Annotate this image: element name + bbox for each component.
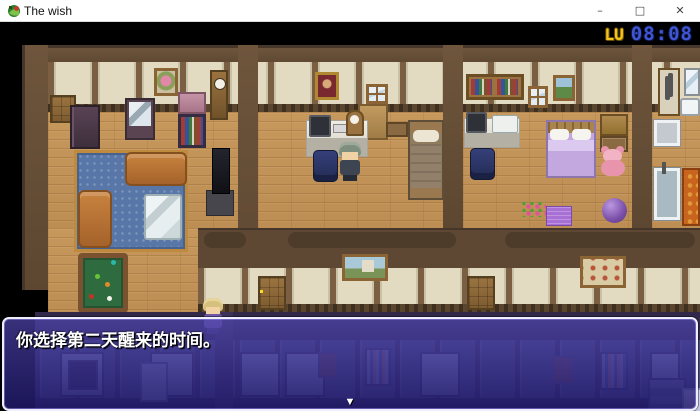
bathroom-sink <box>680 98 700 116</box>
shower-basin <box>654 120 680 146</box>
window-middle <box>366 84 388 104</box>
window-title: The wish <box>24 4 72 18</box>
bed-footboard <box>410 188 442 198</box>
wall-bookshelf <box>466 74 524 100</box>
door-middle-left <box>258 276 286 310</box>
clock-period-label: LU <box>605 25 624 44</box>
glass-table <box>144 194 182 240</box>
bed-single <box>408 120 444 200</box>
npc-face <box>342 152 358 160</box>
wardrobe-dark <box>70 105 100 149</box>
pool-ball-green <box>95 274 100 279</box>
band-inset <box>204 232 246 248</box>
pool-ball-teal <box>111 260 116 265</box>
npc-legs <box>343 175 357 181</box>
books-row <box>471 79 492 95</box>
minimize-icon[interactable]: – <box>580 0 620 21</box>
shower-head <box>665 76 670 100</box>
bed-pillow <box>413 130 439 142</box>
close-icon[interactable]: ✕ <box>660 0 700 21</box>
door-middle-right <box>467 276 495 310</box>
pool-table <box>78 253 128 313</box>
bench-small <box>386 122 408 137</box>
bed-pillow <box>572 129 591 140</box>
app-window: The wish – □ ✕ LU 08:08 <box>0 0 700 411</box>
bed-blanket-fold <box>548 140 594 151</box>
window-controls: – □ ✕ <box>580 0 700 21</box>
bed-pillow <box>550 129 569 140</box>
player-face <box>206 307 220 314</box>
npc-body <box>340 160 360 175</box>
display-cabinet-glass <box>129 102 151 126</box>
bed-double-purple <box>546 120 596 178</box>
books-row <box>497 79 518 95</box>
dialogue-window[interactable]: 你选择第二天醒来的时间。 ▼ <box>2 317 698 411</box>
teddy-body <box>601 160 625 176</box>
bed-blanket <box>411 144 441 188</box>
printer <box>492 115 518 133</box>
flowers-small <box>522 202 546 217</box>
mirror <box>684 68 700 96</box>
couch-vertical <box>78 190 112 248</box>
dialogue-continue-icon: ▼ <box>345 396 356 408</box>
hud-clock: LU 08:08 <box>605 23 693 45</box>
painting-castle-keep <box>362 260 374 272</box>
bathtub <box>654 168 680 220</box>
grandfather-clock-face <box>214 78 226 90</box>
band-inset <box>288 232 456 248</box>
band-inset <box>505 232 695 248</box>
tv-screen <box>212 148 230 194</box>
titlebar[interactable]: The wish – □ ✕ <box>0 0 700 22</box>
pool-ball-red <box>89 294 94 299</box>
window-right <box>528 86 548 108</box>
clock-time: 08:08 <box>631 23 693 45</box>
wall-divider-bathroom <box>632 45 652 228</box>
picture-flowers <box>154 68 178 96</box>
door-sparkle <box>260 290 263 293</box>
rug-orange <box>682 168 700 226</box>
character-npc <box>338 142 362 182</box>
mantel-clock-face <box>350 115 359 124</box>
game-viewport[interactable]: LU 08:08 <box>0 22 700 411</box>
wall-left-border <box>22 45 48 290</box>
painting-landscape <box>553 75 575 101</box>
app-icon <box>7 4 21 18</box>
purple-ball <box>602 198 627 223</box>
side-table <box>600 114 628 136</box>
couch-horizontal <box>125 152 187 186</box>
bathtub-faucet <box>662 162 666 174</box>
teddy-bear <box>600 146 626 176</box>
maximize-icon[interactable]: □ <box>620 0 660 21</box>
framed-tapestry <box>580 256 626 288</box>
wall-divider-middle <box>443 45 463 228</box>
purple-mat <box>546 206 572 226</box>
pool-ball-white <box>107 296 112 301</box>
office-chair-right <box>470 148 495 180</box>
computer-monitor-right <box>466 112 487 133</box>
office-chair-middle <box>313 150 338 182</box>
magazine-rack <box>178 114 206 148</box>
pool-ball-orange <box>105 282 110 287</box>
dresser-pink <box>178 92 206 114</box>
computer-monitor <box>309 115 331 137</box>
dialogue-text: 你选择第二天醒来的时间。 <box>16 326 684 351</box>
portrait-painting <box>315 72 339 100</box>
